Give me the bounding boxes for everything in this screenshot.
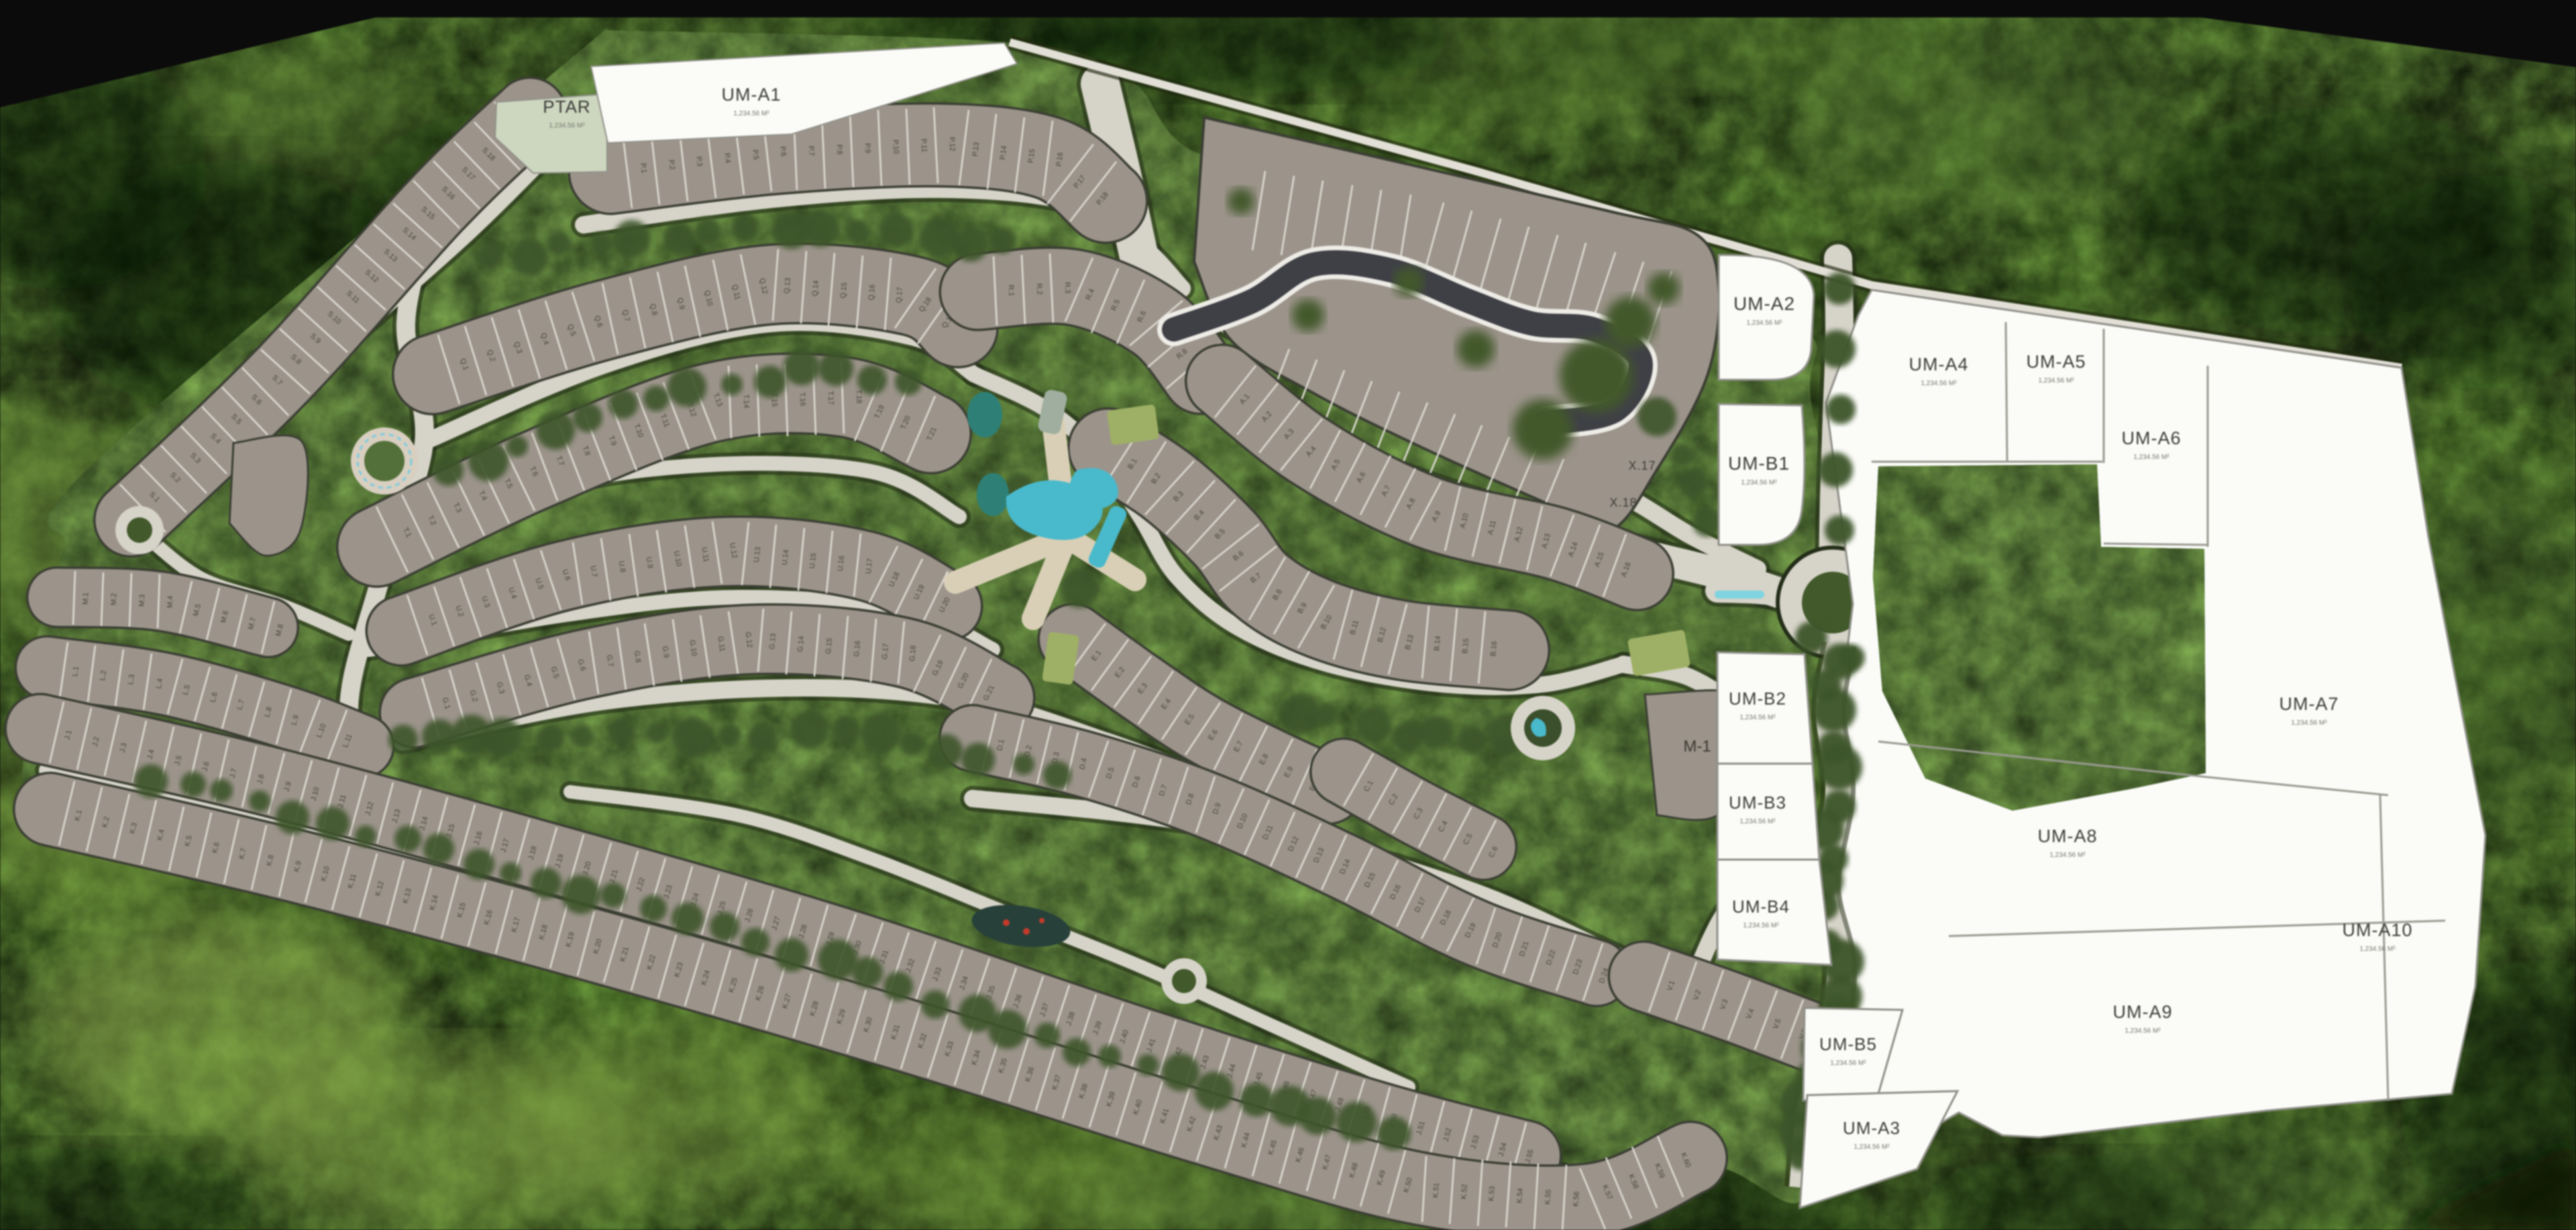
svg-text:G.13: G.13 — [768, 633, 777, 650]
svg-text:G.18: G.18 — [908, 645, 918, 662]
svg-text:PTAR: PTAR — [543, 97, 590, 117]
svg-text:1,234.56 M²: 1,234.56 M² — [1854, 1143, 1890, 1151]
svg-text:G.14: G.14 — [796, 635, 806, 652]
svg-text:M-1: M-1 — [1683, 737, 1711, 756]
svg-text:T.18: T.18 — [855, 389, 863, 403]
svg-text:1,234.56 M²: 1,234.56 M² — [2125, 1027, 2161, 1035]
svg-text:K.56: K.56 — [1572, 1191, 1581, 1207]
svg-text:P.11: P.11 — [919, 138, 928, 152]
svg-text:P.10: P.10 — [891, 140, 900, 154]
svg-text:P.13: P.13 — [971, 142, 981, 157]
svg-text:P.16: P.16 — [1055, 152, 1065, 167]
svg-text:UM-B2: UM-B2 — [1729, 688, 1786, 709]
svg-text:Q.16: Q.16 — [867, 284, 877, 301]
svg-text:L.3: L.3 — [127, 674, 136, 685]
svg-text:UM-A5: UM-A5 — [2026, 352, 2086, 372]
svg-text:U.15: U.15 — [808, 552, 818, 568]
svg-text:P.1: P.1 — [639, 162, 648, 173]
svg-text:T.16: T.16 — [798, 392, 807, 406]
svg-text:P.15: P.15 — [1027, 148, 1036, 164]
svg-text:UM-A9: UM-A9 — [2112, 1002, 2172, 1022]
svg-text:P.6: P.6 — [778, 146, 788, 156]
svg-text:X.17: X.17 — [1628, 459, 1656, 472]
svg-text:UM-B3: UM-B3 — [1729, 792, 1786, 813]
svg-text:R.1: R.1 — [1007, 285, 1016, 297]
svg-text:1,234.56 M²: 1,234.56 M² — [1739, 818, 1776, 825]
svg-text:P.8: P.8 — [835, 144, 844, 155]
svg-text:U.13: U.13 — [753, 546, 762, 562]
svg-text:K.55: K.55 — [1544, 1189, 1553, 1205]
svg-text:M.2: M.2 — [110, 593, 119, 606]
svg-text:T.14: T.14 — [742, 394, 751, 408]
svg-text:1,234.56 M²: 1,234.56 M² — [1921, 380, 1957, 387]
svg-text:G.16: G.16 — [853, 640, 862, 657]
svg-text:M.4: M.4 — [166, 596, 175, 609]
svg-text:1,234.56 M²: 1,234.56 M² — [1741, 479, 1777, 486]
svg-text:B.15: B.15 — [1461, 638, 1470, 654]
svg-text:UM-A2: UM-A2 — [1733, 293, 1795, 314]
svg-text:G.15: G.15 — [824, 637, 834, 654]
svg-text:B.14: B.14 — [1433, 635, 1442, 652]
svg-text:1,234.56 M²: 1,234.56 M² — [1746, 319, 1782, 327]
svg-text:G.8: G.8 — [633, 650, 642, 663]
svg-text:UM-A7: UM-A7 — [2279, 694, 2339, 714]
svg-text:T.17: T.17 — [826, 391, 835, 405]
svg-text:1,234.56 M²: 1,234.56 M² — [2133, 454, 2169, 461]
svg-text:1,234.56 M²: 1,234.56 M² — [1743, 922, 1779, 929]
svg-text:UM-A1: UM-A1 — [721, 85, 781, 105]
svg-text:U.17: U.17 — [865, 558, 874, 574]
svg-text:1,234.56 M²: 1,234.56 M² — [2359, 945, 2396, 953]
svg-text:UM-A10: UM-A10 — [2342, 920, 2412, 940]
svg-text:1,234.56 M²: 1,234.56 M² — [549, 122, 585, 130]
svg-text:P.5: P.5 — [751, 149, 760, 160]
svg-text:1,234.56 M²: 1,234.56 M² — [2038, 377, 2074, 385]
svg-text:UM-A6: UM-A6 — [2121, 428, 2181, 448]
svg-text:Q.17: Q.17 — [895, 287, 904, 303]
svg-text:L.2: L.2 — [99, 670, 108, 681]
svg-text:G.17: G.17 — [881, 643, 890, 660]
svg-text:1,234.56 M²: 1,234.56 M² — [1830, 1060, 1866, 1067]
svg-text:1,234.56 M²: 1,234.56 M² — [1739, 714, 1776, 721]
svg-text:G.7: G.7 — [605, 654, 614, 667]
svg-text:P.9: P.9 — [863, 143, 872, 154]
svg-text:1,234.56 M²: 1,234.56 M² — [2291, 719, 2327, 727]
svg-text:L.4: L.4 — [155, 678, 164, 689]
svg-text:B.16: B.16 — [1489, 641, 1499, 657]
svg-text:Q.14: Q.14 — [811, 280, 820, 297]
svg-text:UM-A4: UM-A4 — [1909, 354, 1968, 374]
svg-text:1,234.56 M²: 1,234.56 M² — [733, 110, 769, 117]
svg-text:P.7: P.7 — [807, 146, 816, 156]
svg-text:1,234.56 M²: 1,234.56 M² — [2049, 852, 2086, 859]
svg-text:L.1: L.1 — [71, 666, 80, 677]
svg-text:UM-B5: UM-B5 — [1819, 1034, 1877, 1054]
svg-text:P.2: P.2 — [667, 159, 676, 170]
svg-text:K.54: K.54 — [1515, 1188, 1525, 1203]
svg-text:P.14: P.14 — [999, 145, 1008, 160]
svg-text:R.2: R.2 — [1035, 283, 1044, 295]
svg-text:P.3: P.3 — [694, 156, 704, 166]
svg-text:Q.15: Q.15 — [839, 282, 849, 299]
svg-text:G.9: G.9 — [661, 646, 670, 658]
svg-text:P.12: P.12 — [947, 137, 956, 152]
svg-text:M.3: M.3 — [138, 595, 147, 607]
svg-text:U.16: U.16 — [837, 555, 846, 571]
svg-text:Q.13: Q.13 — [783, 277, 792, 294]
svg-text:P.4: P.4 — [722, 152, 732, 163]
svg-text:UM-A3: UM-A3 — [1843, 1118, 1900, 1138]
svg-text:X.18: X.18 — [1609, 496, 1637, 509]
svg-text:K.52: K.52 — [1460, 1184, 1469, 1199]
svg-text:UM-A8: UM-A8 — [2037, 826, 2097, 846]
svg-text:U.14: U.14 — [781, 549, 790, 565]
svg-text:UM-B4: UM-B4 — [1732, 896, 1790, 917]
svg-text:UM-B1: UM-B1 — [1728, 453, 1790, 474]
svg-text:K.53: K.53 — [1487, 1186, 1497, 1201]
svg-text:R.3: R.3 — [1063, 282, 1072, 294]
svg-text:K.51: K.51 — [1432, 1182, 1441, 1198]
svg-text:M.1: M.1 — [82, 593, 91, 605]
